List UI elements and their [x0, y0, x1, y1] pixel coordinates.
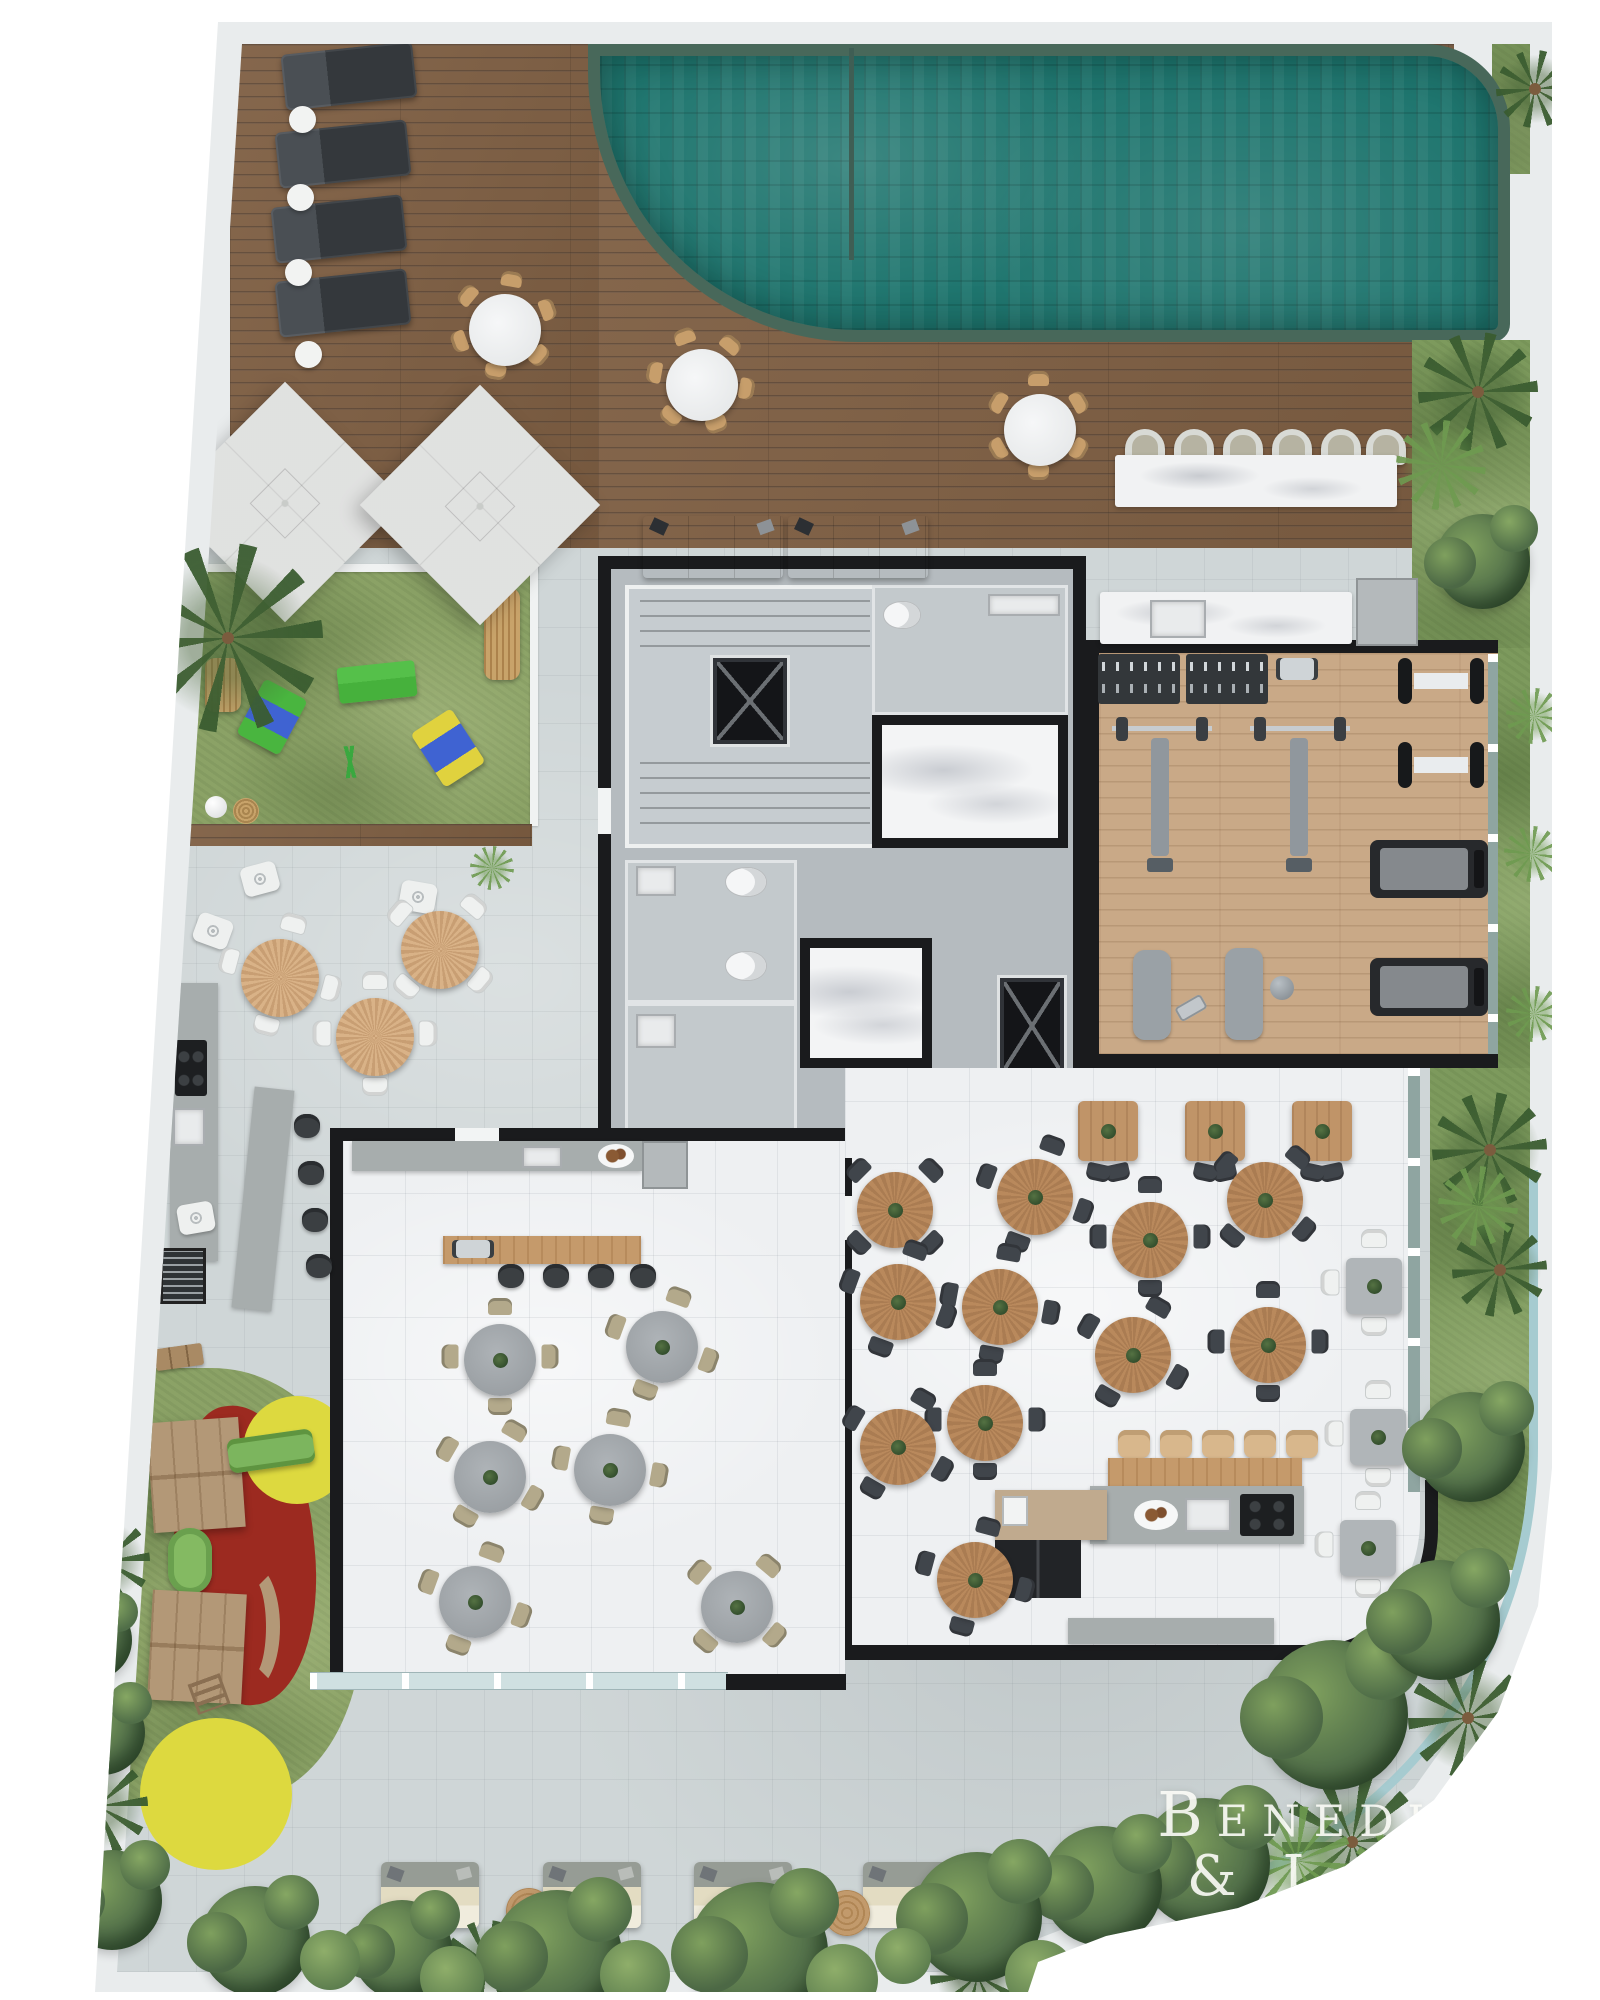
deck-sofa-1 — [643, 516, 783, 578]
deck-table-2 — [666, 349, 738, 421]
watermark-line-2: & Lopes — [1095, 1844, 1595, 1909]
gourmet-sink — [173, 1108, 205, 1146]
dining-table-6 — [1095, 1317, 1171, 1393]
party-table-6 — [701, 1571, 773, 1643]
terrace-table-2 — [824, 1890, 870, 1936]
party-stool-2 — [543, 1264, 569, 1288]
terrace-sofa-4 — [863, 1862, 961, 1928]
gourmet-table-1 — [241, 939, 319, 1017]
terrace-sofa-3 — [694, 1862, 792, 1928]
treadmill-2 — [1370, 958, 1488, 1016]
toilet-c — [726, 952, 766, 980]
toilet-b — [726, 868, 766, 896]
window-table-3 — [1340, 1520, 1396, 1576]
dining-table-3 — [1227, 1162, 1303, 1238]
toy-seesaw — [317, 744, 383, 780]
sink-b — [636, 866, 676, 896]
party-table-3 — [454, 1441, 526, 1513]
island-sink — [1185, 1498, 1231, 1532]
yoga-mat-1 — [1133, 950, 1171, 1040]
wall-dining-right — [1408, 1068, 1420, 1492]
exercise-ball — [1270, 976, 1294, 1000]
party-table-2 — [626, 1311, 698, 1383]
plan-zones — [0, 0, 1600, 2000]
side-table-3 — [285, 259, 312, 286]
deck-table-1 — [469, 294, 541, 366]
pool — [588, 44, 1510, 342]
party-table-4 — [574, 1434, 646, 1506]
barbell-2 — [1250, 724, 1350, 734]
play-house-1 — [146, 1417, 245, 1533]
outdoor-counter — [1100, 592, 1352, 644]
gym-window-wall — [1488, 654, 1498, 1054]
party-sink — [522, 1146, 562, 1168]
wall-trim-right — [530, 564, 538, 826]
outdoor-cabinet — [1356, 578, 1418, 646]
dumbbell-rack-1 — [1098, 654, 1180, 704]
island-stool-4 — [1244, 1430, 1276, 1458]
dining-table-1 — [997, 1159, 1073, 1235]
barbell-1 — [1112, 724, 1212, 734]
tree-13 — [52, 1600, 132, 1680]
garden-right-lower — [1430, 1068, 1532, 1570]
party-rack — [452, 1240, 494, 1258]
bench-wicker-1 — [205, 658, 241, 712]
wall-dining-bottom — [845, 1645, 1337, 1660]
terrace-sofa-2 — [543, 1862, 641, 1928]
dining-table-7 — [1230, 1307, 1306, 1383]
island-cooktop — [1240, 1494, 1294, 1536]
site-boundary: Beneduzi & Lopes — [0, 0, 1600, 2000]
dining-table-11 — [937, 1542, 1013, 1618]
party-fridge — [642, 1141, 688, 1189]
party-table-1 — [464, 1324, 536, 1396]
deck-table-3 — [1004, 394, 1076, 466]
elevator-1 — [713, 658, 787, 744]
garden-right-mid — [1498, 648, 1532, 1070]
terrace-table-1 — [506, 1888, 552, 1934]
party-table-5 — [439, 1566, 511, 1638]
weight-rack-small — [1276, 658, 1318, 680]
stairs-lower — [640, 762, 870, 834]
toy-basket — [233, 798, 259, 824]
toy-ball — [205, 796, 227, 818]
glass-wall-party — [310, 1672, 728, 1690]
party-stool-1 — [498, 1264, 524, 1288]
bench-press-2 — [1290, 738, 1308, 856]
island-platter — [1134, 1500, 1178, 1530]
island-stool-1 — [1118, 1430, 1150, 1458]
gourmet-stool-4 — [306, 1254, 332, 1278]
dumbbell-rack-2 — [1186, 654, 1268, 704]
door-party — [455, 1128, 499, 1141]
floor-plan-rendering: Beneduzi & Lopes — [0, 0, 1600, 2000]
gourmet-stool-2 — [298, 1161, 324, 1185]
window-table-1 — [1346, 1258, 1402, 1314]
spin-bike-1 — [1398, 658, 1484, 704]
floor-cushion-4 — [176, 1200, 217, 1236]
side-table-4 — [295, 341, 322, 368]
stairs-upper — [640, 600, 870, 658]
dining-table-5 — [962, 1269, 1038, 1345]
bench-press-1 — [1151, 738, 1169, 856]
terrace-sofa-1 — [381, 1862, 479, 1928]
vanity-a — [988, 594, 1060, 616]
dining-table-10 — [860, 1409, 936, 1485]
dining-table-9 — [947, 1385, 1023, 1461]
island-stool-2 — [1160, 1430, 1192, 1458]
palm-10 — [60, 1516, 150, 1606]
buffet-counter — [1068, 1618, 1274, 1644]
party-stool-4 — [630, 1264, 656, 1288]
play-tunnel — [168, 1528, 212, 1594]
party-stool-3 — [588, 1264, 614, 1288]
pool-bar-counter — [1115, 455, 1397, 507]
plant-tuft — [470, 846, 514, 890]
pool-lane-divider — [849, 48, 854, 260]
party-tray — [598, 1144, 634, 1168]
gourmet-stool-1 — [294, 1114, 320, 1138]
marble-lobby — [800, 938, 932, 1068]
dining-table-8 — [860, 1264, 936, 1340]
side-table-1 — [289, 106, 316, 133]
sink-c — [636, 1014, 676, 1048]
marble-room-a — [872, 715, 1068, 848]
wall-party-bottom — [726, 1674, 846, 1690]
window-table-2 — [1350, 1409, 1406, 1465]
door-core-left — [598, 788, 611, 834]
deck-sofa-2 — [788, 516, 928, 578]
fern-8 — [1460, 1760, 1550, 1850]
treadmill-1 — [1370, 840, 1488, 898]
playground-yellow-mat-2 — [140, 1718, 292, 1870]
gourmet-table-3 — [336, 998, 414, 1076]
island-stool-3 — [1202, 1430, 1234, 1458]
gourmet-cooktop — [175, 1040, 207, 1096]
spin-bike-2 — [1398, 742, 1484, 788]
bistro-table-1 — [1078, 1101, 1138, 1161]
side-table-2 — [287, 184, 314, 211]
kitchen-appliance — [1002, 1496, 1028, 1526]
outdoor-counter-sink — [1150, 600, 1206, 638]
dining-table-4 — [857, 1172, 933, 1248]
play-arc — [224, 1564, 280, 1690]
dining-table-2 — [1112, 1202, 1188, 1278]
elevator-2 — [1000, 978, 1064, 1074]
gourmet-table-2 — [401, 911, 479, 989]
yoga-mat-2 — [1225, 948, 1263, 1040]
bistro-table-2 — [1185, 1101, 1245, 1161]
deck-strip — [190, 824, 532, 846]
garden-right-upper — [1412, 340, 1532, 650]
watermark-line-1: Beneduzi — [1095, 1778, 1595, 1851]
gourmet-stool-3 — [302, 1208, 328, 1232]
wall-gym-bottom — [1086, 1054, 1498, 1068]
barbecue-grill — [160, 1248, 206, 1304]
toilet-a — [884, 602, 920, 628]
island-stool-5 — [1286, 1430, 1318, 1458]
island-bar-top — [1108, 1458, 1302, 1486]
